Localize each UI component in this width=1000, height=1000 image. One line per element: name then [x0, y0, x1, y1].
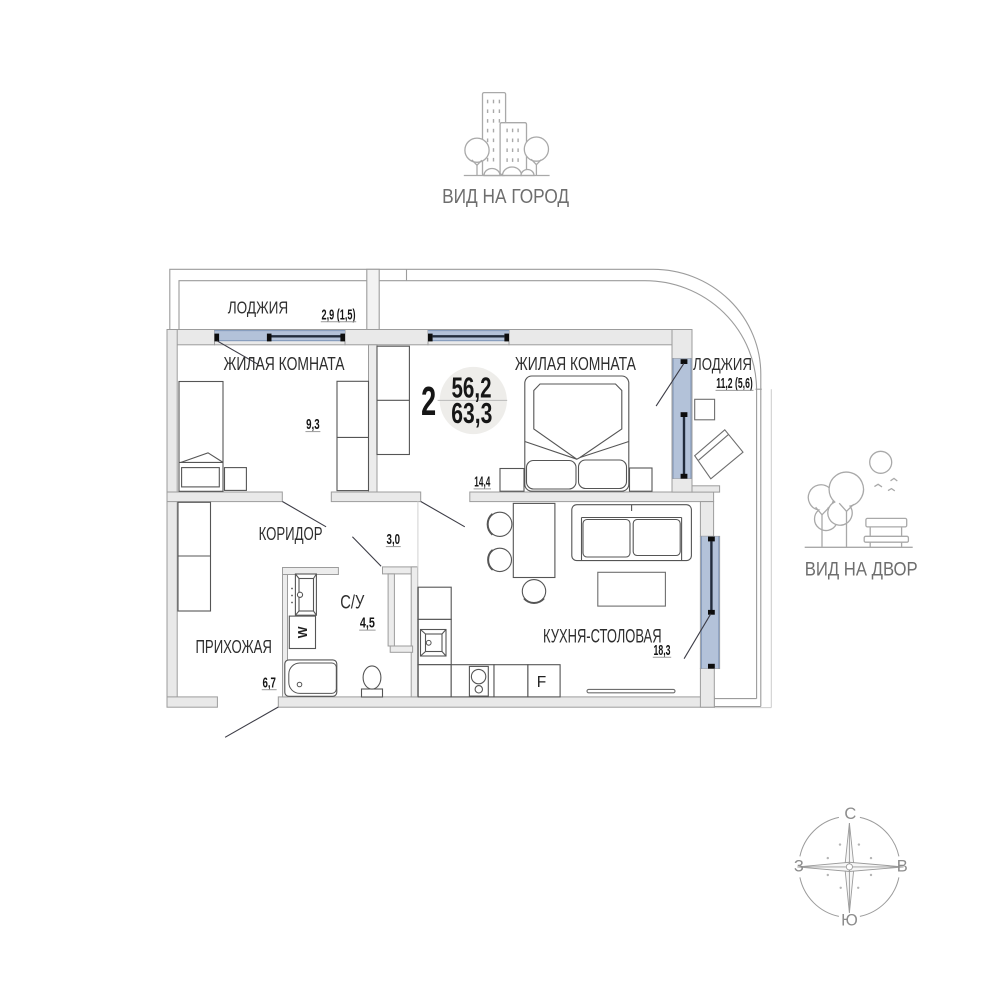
svg-text:9,3: 9,3 [306, 417, 320, 433]
svg-text:ВИД НА ДВОР: ВИД НА ДВОР [805, 559, 918, 581]
svg-text:11,2 (5,6): 11,2 (5,6) [716, 376, 753, 392]
svg-text:ВИД НА ГОРОД: ВИД НА ГОРОД [442, 185, 569, 208]
svg-text:КУХНЯ-СТОЛОВАЯ: КУХНЯ-СТОЛОВАЯ [543, 626, 662, 647]
svg-text:63,3: 63,3 [451, 398, 492, 430]
svg-text:С/У: С/У [340, 593, 365, 614]
svg-text:ПРИХОЖАЯ: ПРИХОЖАЯ [195, 637, 272, 657]
svg-text:ЛОДЖИЯ: ЛОДЖИЯ [693, 354, 752, 374]
svg-text:КОРИДОР: КОРИДОР [259, 524, 323, 544]
svg-text:F: F [537, 674, 546, 691]
svg-text:W: W [296, 626, 310, 638]
svg-text:Ю: Ю [841, 912, 858, 930]
svg-text:14,4: 14,4 [474, 475, 490, 491]
svg-text:6,7: 6,7 [262, 675, 276, 691]
svg-text:С: С [844, 805, 856, 823]
svg-text:2: 2 [421, 378, 436, 424]
svg-text:ЛОДЖИЯ: ЛОДЖИЯ [228, 298, 289, 318]
svg-text:18,3: 18,3 [654, 643, 671, 659]
svg-text:З: З [794, 858, 804, 876]
svg-text:3,0: 3,0 [387, 532, 401, 548]
svg-text:В: В [897, 858, 908, 876]
svg-text:4,5: 4,5 [360, 616, 375, 632]
svg-text:ЖИЛАЯ КОМНАТА: ЖИЛАЯ КОМНАТА [515, 354, 636, 374]
svg-text:2,9 (1,5): 2,9 (1,5) [322, 307, 356, 323]
svg-text:ЖИЛАЯ КОМНАТА: ЖИЛАЯ КОМНАТА [224, 354, 345, 374]
